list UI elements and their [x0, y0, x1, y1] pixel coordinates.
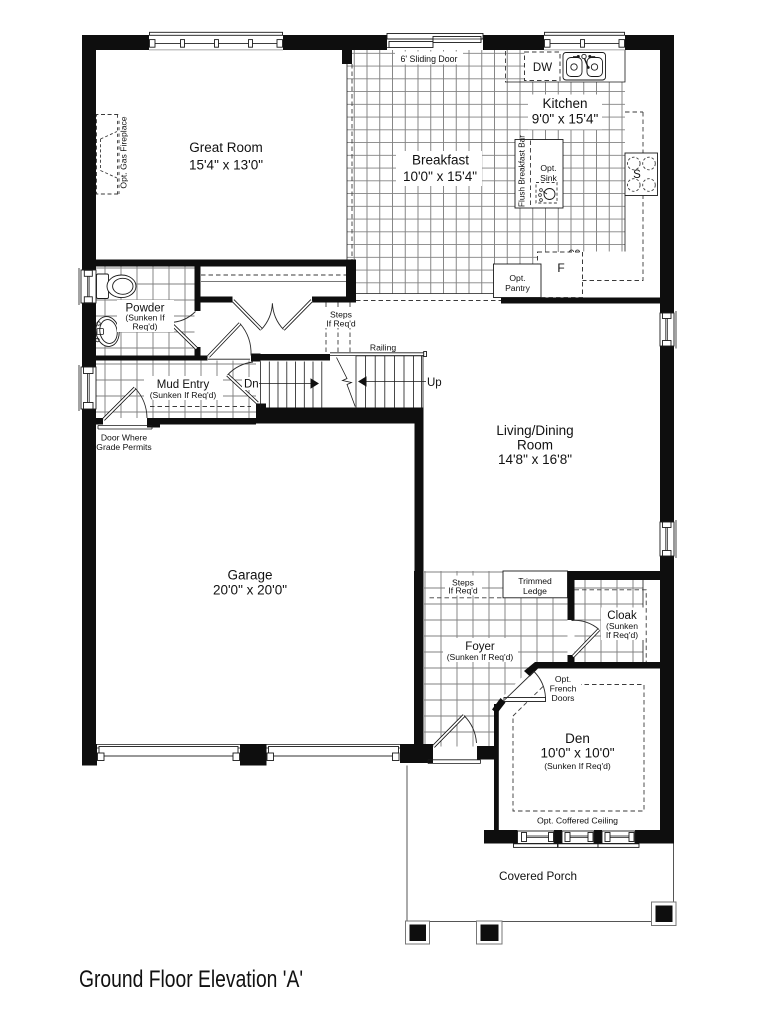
svg-text:Flush Breakfast Bar: Flush Breakfast Bar — [518, 135, 527, 207]
svg-text:Grade Permits: Grade Permits — [96, 442, 151, 452]
svg-text:Trimmed: Trimmed — [518, 576, 552, 586]
svg-text:Dn: Dn — [244, 379, 259, 391]
svg-text:Great Room: Great Room — [189, 140, 263, 155]
svg-text:9'0" x 15'4": 9'0" x 15'4" — [532, 112, 599, 127]
svg-text:20'0" x 20'0": 20'0" x 20'0" — [213, 583, 287, 598]
svg-text:(Sunken If Req'd): (Sunken If Req'd) — [544, 761, 611, 771]
svg-text:Opt.: Opt. — [540, 163, 556, 173]
svg-text:Breakfast: Breakfast — [412, 153, 469, 168]
svg-text:Ground Floor Elevation 'A': Ground Floor Elevation 'A' — [79, 966, 303, 993]
svg-text:Doors: Doors — [552, 693, 575, 703]
svg-text:Sink: Sink — [540, 173, 557, 183]
svg-text:Req'd): Req'd) — [132, 322, 157, 332]
svg-text:10'0" x 10'0": 10'0" x 10'0" — [540, 746, 614, 761]
svg-text:If Req'd): If Req'd) — [606, 630, 638, 640]
svg-text:Door Where: Door Where — [101, 433, 148, 443]
svg-text:French: French — [550, 684, 577, 694]
svg-text:DW: DW — [533, 62, 552, 74]
svg-text:Opt. Coffered Ceiling: Opt. Coffered Ceiling — [537, 815, 618, 825]
svg-text:Garage: Garage — [227, 568, 272, 583]
svg-text:Room: Room — [517, 438, 553, 453]
svg-text:Ledge: Ledge — [523, 586, 547, 596]
svg-text:14'8" x 16'8": 14'8" x 16'8" — [498, 452, 572, 467]
svg-text:(Sunken If Req'd): (Sunken If Req'd) — [447, 652, 514, 662]
svg-text:Opt. Gas Fireplace: Opt. Gas Fireplace — [119, 116, 129, 188]
svg-text:Opt.: Opt. — [555, 674, 571, 684]
svg-text:S: S — [633, 169, 641, 181]
svg-text:If Req'd: If Req'd — [448, 586, 478, 596]
svg-text:Pantry: Pantry — [505, 283, 531, 293]
svg-text:Living/Dining: Living/Dining — [496, 423, 573, 438]
svg-text:6' Sliding Door: 6' Sliding Door — [401, 54, 458, 64]
svg-text:Up: Up — [427, 377, 442, 389]
svg-text:Railing: Railing — [370, 343, 396, 353]
svg-text:(Sunken If Req'd): (Sunken If Req'd) — [150, 390, 217, 400]
svg-text:Kitchen: Kitchen — [542, 96, 587, 111]
svg-text:Covered Porch: Covered Porch — [499, 870, 577, 883]
svg-text:15'4" x 13'0": 15'4" x 13'0" — [189, 158, 263, 173]
svg-text:Opt.: Opt. — [509, 273, 525, 283]
svg-text:10'0" x 15'4": 10'0" x 15'4" — [403, 169, 477, 184]
svg-text:Den: Den — [565, 731, 590, 746]
svg-text:F: F — [557, 261, 564, 275]
svg-text:If Req'd: If Req'd — [326, 319, 356, 329]
